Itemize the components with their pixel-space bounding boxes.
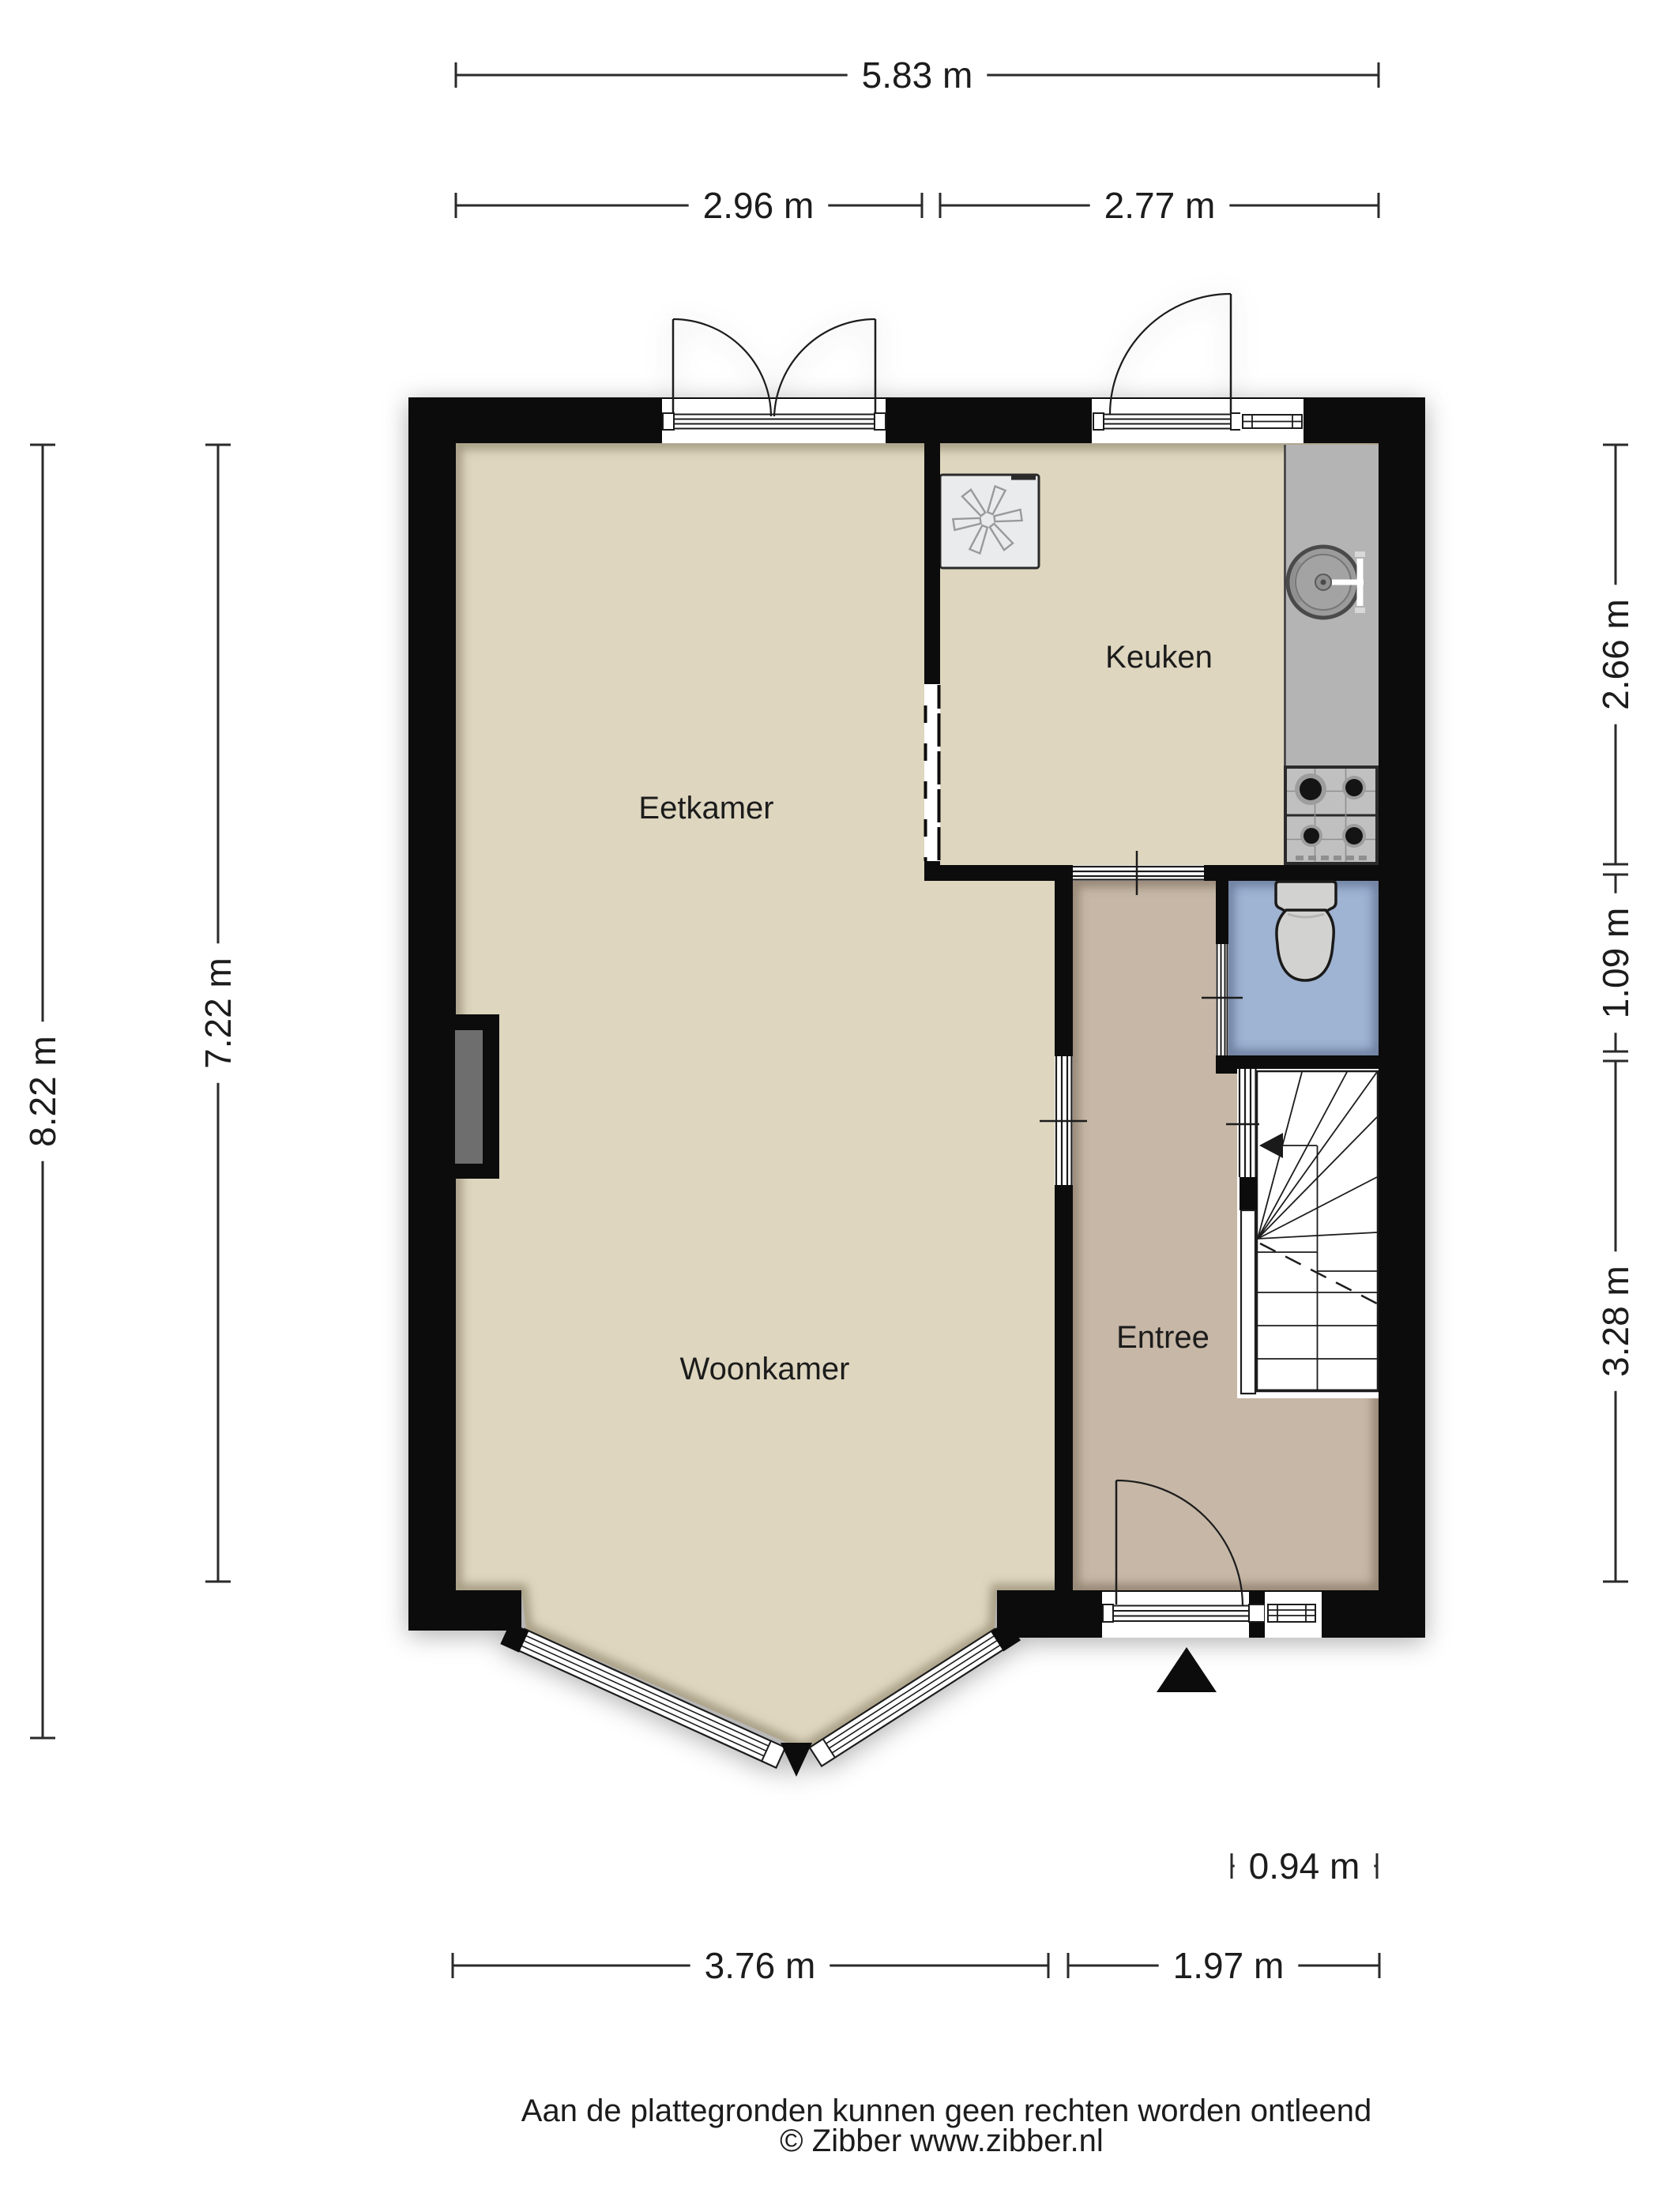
svg-text:2.66 m: 2.66 m [1595, 599, 1636, 710]
svg-text:2.96 m: 2.96 m [703, 185, 814, 226]
svg-text:Keuken: Keuken [1105, 640, 1213, 675]
svg-text:Entree: Entree [1116, 1320, 1209, 1355]
svg-text:3.28 m: 3.28 m [1595, 1266, 1636, 1377]
svg-text:3.76 m: 3.76 m [705, 1945, 816, 1986]
svg-text:Woonkamer: Woonkamer [680, 1352, 850, 1386]
svg-text:1.09 m: 1.09 m [1595, 908, 1636, 1019]
svg-text:2.77 m: 2.77 m [1104, 185, 1216, 226]
svg-text:7.22 m: 7.22 m [197, 957, 239, 1069]
svg-text:© Zibber www.zibber.nl: © Zibber www.zibber.nl [780, 2124, 1104, 2158]
svg-text:8.22 m: 8.22 m [22, 1036, 63, 1147]
svg-text:Eetkamer: Eetkamer [638, 791, 773, 826]
svg-text:0.94 m: 0.94 m [1249, 1845, 1360, 1887]
svg-text:5.83 m: 5.83 m [862, 55, 973, 96]
svg-text:1.97 m: 1.97 m [1173, 1945, 1285, 1986]
